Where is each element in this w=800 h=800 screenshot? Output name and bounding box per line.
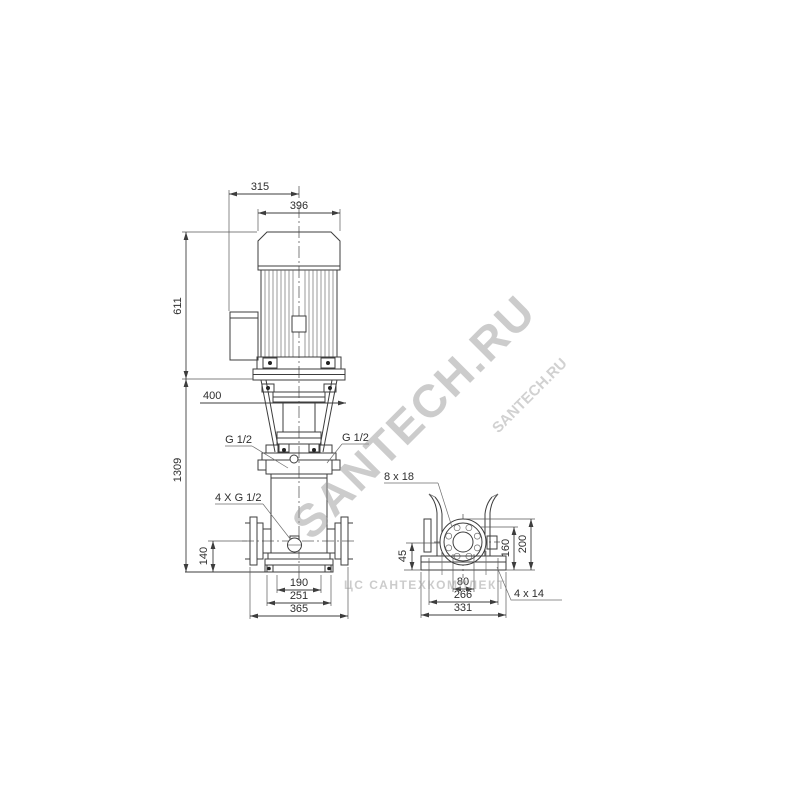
base-holes-label: 4 x 14	[514, 588, 544, 600]
watermark-secondary: SANTECH.RU	[489, 355, 571, 437]
watermark-bottom: ЦС САНТЕХКОМПЛЕКТ	[344, 578, 506, 592]
port-flange-circle	[440, 519, 486, 565]
dim-400-label: 400	[203, 390, 221, 402]
dim-251-label: 251	[290, 590, 308, 602]
port-g12-left-label: G 1/2	[225, 434, 252, 446]
dim-1309-label: 1309	[172, 458, 184, 482]
dim-331-label: 331	[454, 602, 472, 614]
dim-45-label: 45	[397, 550, 409, 562]
gauge-port-left	[258, 460, 266, 470]
base-view: 8 x 18 45 160 200 80 266	[384, 471, 562, 618]
dim-365-label: 365	[290, 603, 308, 615]
dim-160-label: 160	[500, 539, 512, 557]
pump-dimensional-drawing-page: 315 396 611 1309 400 G 1/2 G 1/2 4 X G 1…	[0, 0, 800, 800]
plug-ports-label: 4 X G 1/2	[215, 492, 261, 504]
dim-396-label: 396	[290, 200, 308, 212]
dim-190-label: 190	[290, 577, 308, 589]
terminal-box	[230, 312, 258, 360]
vent-plug	[290, 455, 298, 463]
dim-140-label: 140	[198, 547, 210, 565]
dim-200-label: 200	[517, 535, 529, 553]
dim-315-label: 315	[251, 181, 269, 193]
dim-611-label: 611	[172, 297, 184, 315]
pump-dimensional-drawing: 315 396 611 1309 400 G 1/2 G 1/2 4 X G 1…	[0, 0, 800, 800]
motor-nameplate	[292, 316, 306, 332]
front-view: 315 396 611 1309 400 G 1/2 G 1/2 4 X G 1…	[172, 181, 369, 619]
